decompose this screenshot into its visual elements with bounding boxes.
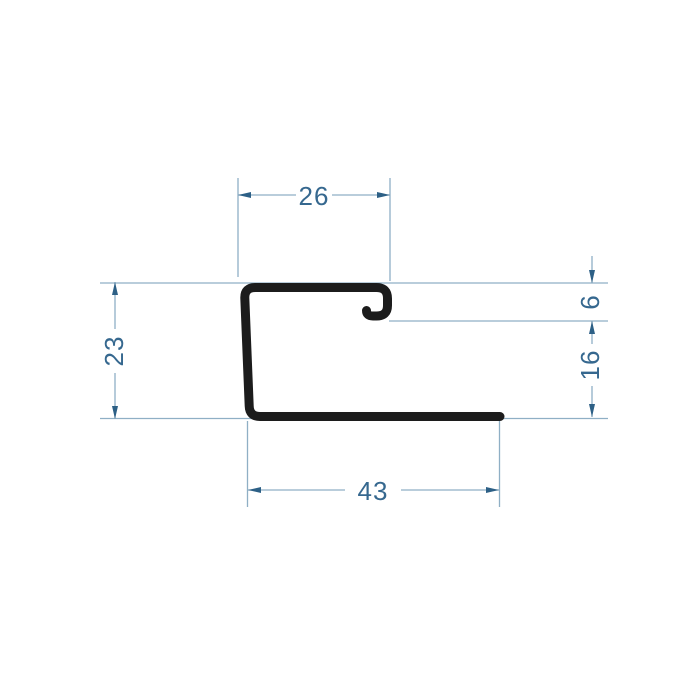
dimension-arrow-down <box>589 404 595 417</box>
drawing-canvas: 26 23 6 16 43 <box>0 0 700 700</box>
dimension-label-hook-depth: 6 <box>577 294 603 309</box>
dimension-label-bottom-width: 43 <box>358 478 389 504</box>
dimension-arrow-up <box>112 282 118 295</box>
dimension-arrow-left <box>238 192 251 198</box>
dimension-arrow-up <box>589 321 595 334</box>
dimension-arrow-right <box>486 487 499 493</box>
dimension-label-top-width: 26 <box>299 183 330 209</box>
dimension-arrow-left <box>248 487 261 493</box>
dimension-label-left-height: 23 <box>101 336 127 367</box>
profile-outline <box>245 288 500 417</box>
dimension-arrow-down <box>589 270 595 283</box>
dimension-arrow-right <box>377 192 390 198</box>
dimension-arrow-down <box>112 406 118 419</box>
dimension-label-right-height: 16 <box>577 350 603 381</box>
